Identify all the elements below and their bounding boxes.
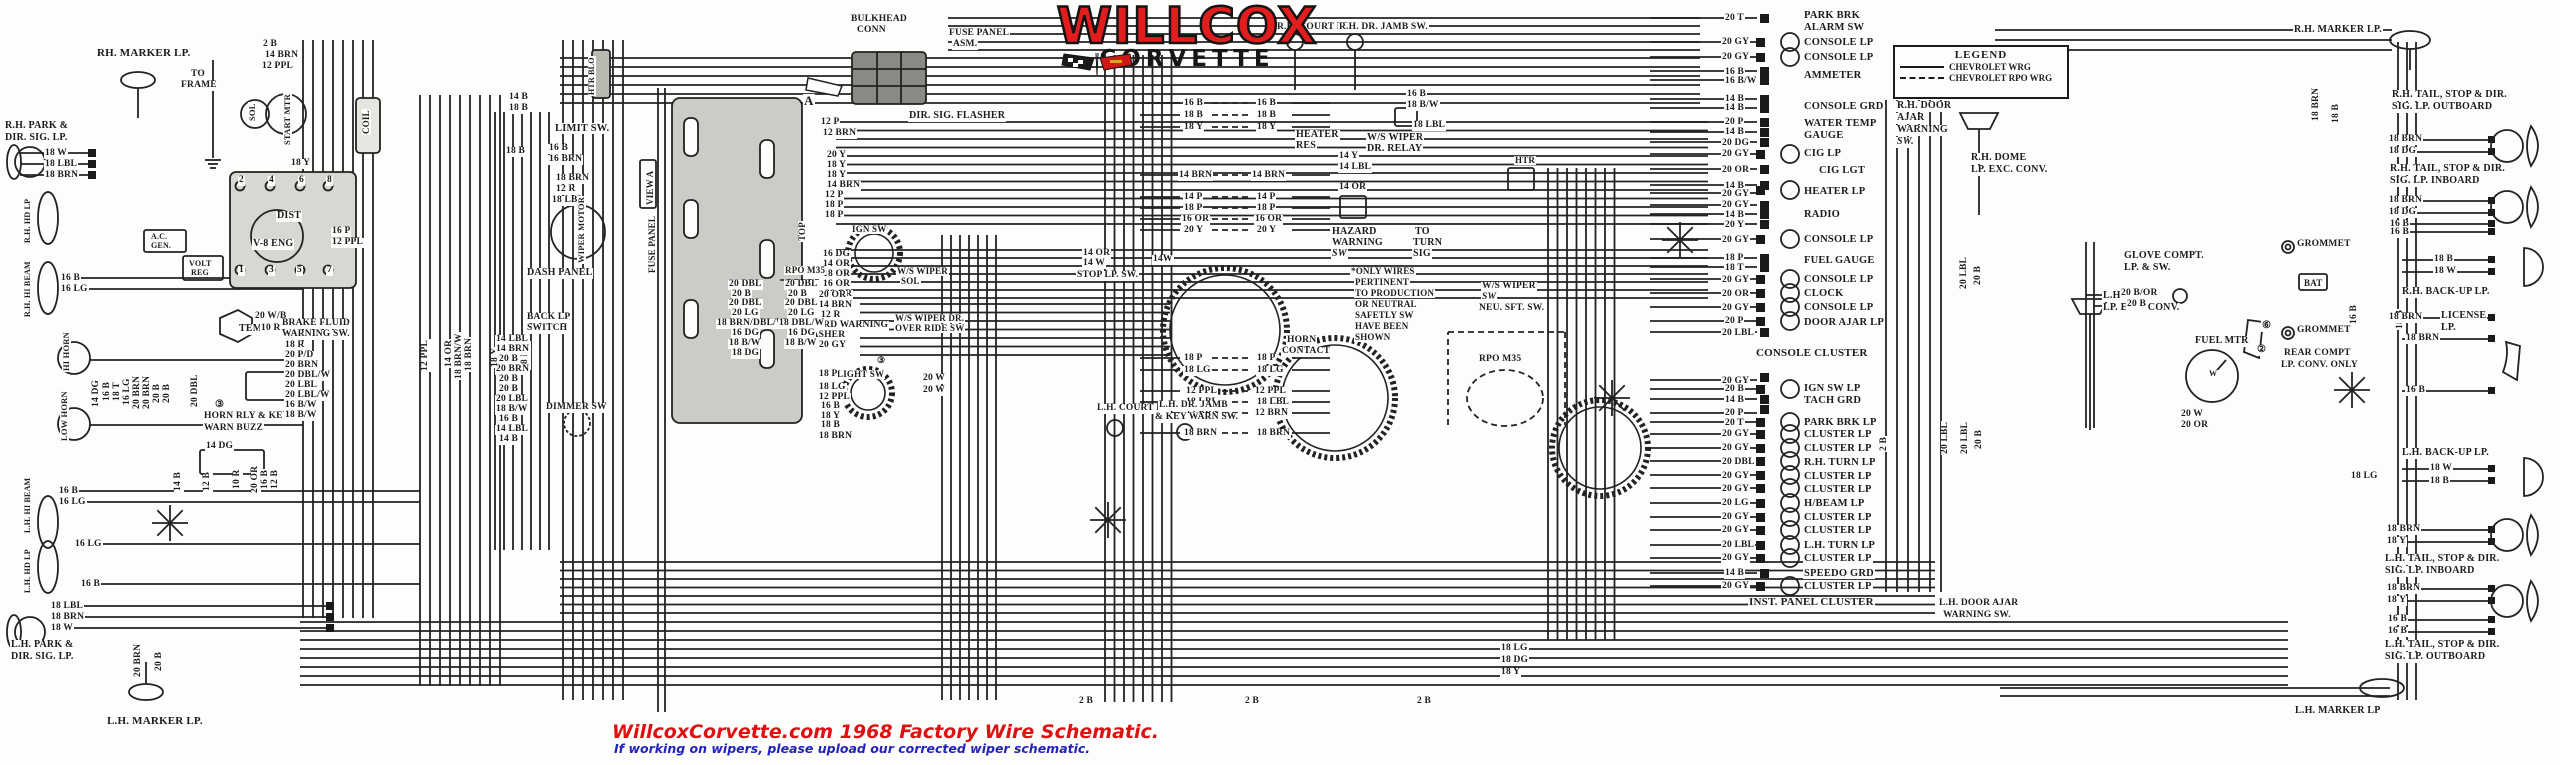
lh-park-dir-sig-lp-label: L.H. PARK & xyxy=(10,640,75,651)
wire-label: TOP xyxy=(798,221,807,242)
wire-label: CLUSTER LP xyxy=(1803,429,1873,440)
wire-label: SIG. LP. INBOARD xyxy=(2389,176,2481,187)
wire-label: TURN xyxy=(1412,238,1443,249)
wire-label: 18 W xyxy=(2429,464,2453,474)
neu-sft-sw-label: NEU. SFT. SW. xyxy=(1478,304,1545,314)
wire-label: 18 Y xyxy=(2386,596,2407,606)
wire-label: 18 BRN xyxy=(1256,429,1291,439)
wire-label: 18 BRN xyxy=(2386,525,2421,535)
wire-label: 16 B xyxy=(60,274,81,284)
wire-label: 20 LBL xyxy=(1941,421,1951,455)
wire-label: 18 BRN xyxy=(2388,196,2423,206)
wire-label: SHOWN xyxy=(1354,333,1392,342)
wire-label: REG xyxy=(190,269,210,277)
wire-label: 10 R xyxy=(260,324,282,334)
wire-label: 20 B xyxy=(163,383,173,404)
wire-label: 14 DG xyxy=(205,442,234,452)
wire-label: DOOR AJAR LP xyxy=(1803,317,1885,328)
wire-label: CLUSTER LP xyxy=(1803,525,1873,536)
wire-label: SAFETLY SW xyxy=(1354,311,1415,320)
wire-label: TO xyxy=(190,70,206,80)
legend-item-chevrolet-rpo-wrg: CHEVROLET RPO WRG xyxy=(1900,73,2067,83)
license-lp-label: LICENSE xyxy=(2440,311,2487,322)
wire-label: 2 B xyxy=(1078,697,1094,707)
wire-label: CLUSTER LP xyxy=(1803,512,1873,523)
wire-label: 18 P xyxy=(1183,204,1203,214)
wire-label: 18 LG xyxy=(2350,472,2379,482)
fuel-gauge-label: FUEL GAUGE xyxy=(1803,255,1876,266)
wire-label: 16 P xyxy=(331,227,351,237)
wire-label: 18 LG xyxy=(1183,366,1212,376)
water-temp-gauge-label: WATER TEMP xyxy=(1803,118,1878,129)
wire-label: GEN. xyxy=(150,242,172,250)
wire-label: CLUSTER LP xyxy=(1803,471,1873,482)
wire-label: 18 P xyxy=(1256,354,1276,364)
wire-label: 12 BRN xyxy=(822,129,857,139)
wire-label: 20 DBL xyxy=(1721,458,1756,468)
dir-sig-flasher-label: DIR. SIG. FLASHER xyxy=(908,111,1006,122)
wire-label: SOL xyxy=(900,277,921,286)
wire-label: 20 Y xyxy=(1183,226,1204,236)
wire-label: HAVE BEEN xyxy=(1354,322,1409,331)
wire-label: LP. xyxy=(2440,323,2457,334)
wire-label: H/BEAM LP xyxy=(1803,498,1865,509)
wire-label: DR. RELAY xyxy=(1366,144,1423,155)
wire-label: 20 GY xyxy=(1721,554,1750,564)
wire-label: 18 B xyxy=(820,421,841,431)
wire-label: 20 GY xyxy=(1721,472,1750,482)
wire-label: SIG xyxy=(1412,249,1432,260)
fuse-panel-asm-label: FUSE PANEL xyxy=(948,29,1010,39)
wire-label: 18 BRN xyxy=(555,174,590,184)
wire-label: 20 GY xyxy=(1721,444,1750,454)
heater-res-label: HEATER xyxy=(1295,130,1340,141)
wire-label: WARN BUZZ xyxy=(203,424,264,434)
wire-label: 4 xyxy=(268,176,275,186)
wire-label: 18 B/W xyxy=(284,411,318,421)
wire-label: 5 xyxy=(296,266,303,276)
legend-item-chevrolet-wrg: CHEVROLET WRG xyxy=(1900,62,2067,72)
wire-label: CONN xyxy=(856,26,887,36)
wire-label: 20 Y xyxy=(1256,226,1277,236)
wire-label: 14 B xyxy=(1724,569,1745,579)
wire-label: 16 LG xyxy=(74,540,103,550)
wire-label: 20 OR xyxy=(2180,421,2209,431)
wire-label: WARNING SW. xyxy=(1942,611,2012,621)
console-cluster-section-label: CONSOLE CLUSTER xyxy=(1755,348,1869,360)
dist-label: DIST xyxy=(276,211,302,222)
wire-label: 20 OR xyxy=(1721,166,1750,176)
wire-label: SW xyxy=(1481,293,1497,303)
wire-label: CONTACT xyxy=(1281,347,1331,357)
wire-label: 18 LBL xyxy=(1412,121,1446,131)
wire-label: IGN SW LP xyxy=(1803,383,1861,394)
wire-label: 20 GY xyxy=(818,341,847,351)
limit-sw-label: LIMIT SW. xyxy=(554,123,610,134)
wire-label: 14 BRN xyxy=(264,51,299,61)
wire-label: 20 GY xyxy=(1721,38,1750,48)
wire-label: CONSOLE LP xyxy=(1803,274,1874,285)
wire-label: L.H. HI BEAM xyxy=(24,477,32,534)
wire-label: RES xyxy=(1295,141,1317,152)
wire-label: 2 xyxy=(238,176,245,186)
schematic-labels-layer: RH. MARKER LP.TOFRAME2 B14 BRN12 PPLSOLS… xyxy=(0,0,2560,765)
wire-label: 18 BRN xyxy=(465,337,475,372)
wire-label: W xyxy=(2208,370,2218,378)
wire-label: 16 B xyxy=(548,144,569,154)
wire-label: 18 B xyxy=(1256,111,1277,121)
wire-label: 18 B xyxy=(2433,255,2454,265)
wire-label: 16 BRN xyxy=(548,155,583,165)
glove-compt-label: GLOVE COMPT. xyxy=(2123,251,2205,262)
wire-label: 16 LG xyxy=(60,285,89,295)
wire-label: 20 LBL xyxy=(1960,256,1970,290)
view-a-label: VIEW A xyxy=(646,170,655,206)
lh-tail-inboard-label: L.H. TAIL, STOP & DIR. xyxy=(2384,554,2500,565)
wire-label: 20 P xyxy=(1724,317,1744,327)
wire-label: CLUSTER LP xyxy=(1803,484,1873,495)
wire-label: FRAME xyxy=(180,81,218,91)
wire-label: 18 LBL xyxy=(50,602,84,612)
radio-label: RADIO xyxy=(1803,209,1841,220)
htr-blo-label: HTR BLO xyxy=(588,56,596,96)
hi-horn-label: HI HORN xyxy=(62,331,71,372)
wire-label: 14 P xyxy=(1183,193,1203,203)
wire-label: 2 B xyxy=(262,40,278,50)
wire-label: 14 B xyxy=(498,435,519,445)
wire-label: & KEY WARN SW. xyxy=(1154,413,1239,423)
wire-label: 16 B xyxy=(2387,627,2408,637)
wire-label: 12 PPL xyxy=(261,62,294,72)
wire-label: 16 B xyxy=(1183,99,1204,109)
legend-box: LEGEND CHEVROLET WRG CHEVROLET RPO WRG xyxy=(1893,45,2069,99)
wire-label: 14 BRN xyxy=(1178,171,1213,181)
wire-label: 14 B xyxy=(1724,128,1745,138)
wire-label: CONSOLE LP xyxy=(1803,234,1874,245)
wire-label: 20 B/OR xyxy=(2120,289,2159,299)
wire-label: 12 PPL xyxy=(1185,387,1218,397)
wire-label: 20 Y xyxy=(1724,221,1745,231)
wire-label: 14 P xyxy=(1256,193,1276,203)
wire-label: 18 LG xyxy=(1500,644,1529,654)
wire-label: LP. EXC. CONV. xyxy=(1970,165,2048,176)
wire-label: SPEEDO GRD xyxy=(1803,568,1875,579)
wire-label: RPO M35 xyxy=(784,266,826,275)
wire-label: 14 B xyxy=(174,471,184,492)
wire-label: 18 BRN xyxy=(2388,313,2423,323)
wire-label: HEATER LP xyxy=(1803,186,1866,197)
legend-title: LEGEND xyxy=(1895,49,2067,61)
wire-label: PERTINENT xyxy=(1354,278,1410,287)
wire-label: 16 B xyxy=(80,580,101,590)
lh-backup-lp-label: L.H. BACK-UP LP. xyxy=(2401,448,2490,459)
wire-label: 18 DG xyxy=(1500,656,1529,666)
wire-label: 20 B xyxy=(2126,300,2147,310)
grommet-label: GROMMET xyxy=(2296,326,2352,336)
wire-label: TO PRODUCTION xyxy=(1354,289,1435,298)
wire-label: R.H. HD LP xyxy=(24,198,32,244)
ws-wiper-dr-relay-label: W/S WIPER xyxy=(1366,133,1424,144)
wire-label: 14W xyxy=(1152,255,1174,265)
wire-label: 12 P xyxy=(820,118,840,128)
wire-label: 18 BRN xyxy=(818,432,853,442)
park-brk-alarm-sw-label: PARK BRK xyxy=(1803,10,1861,21)
wire-label: 14 DG xyxy=(92,379,102,408)
solid-line-sample xyxy=(1900,66,1944,68)
wire-label: R.H. TURN LP xyxy=(1803,457,1877,468)
wire-label: 14 B xyxy=(508,93,529,103)
wire-label: 18 W xyxy=(44,149,68,159)
dash-panel-label: DASH PANEL xyxy=(526,268,593,279)
wire-label: 18 LBL xyxy=(1256,398,1290,408)
rh-dome-lp-label: R.H. DOME xyxy=(1970,153,2027,164)
wire-label: 18 DG xyxy=(731,349,760,359)
wire-label: 18 P xyxy=(1256,204,1276,214)
wire-label: SIG. LP. OUTBOARD xyxy=(2384,652,2486,663)
wire-label: CLUSTER LP xyxy=(1803,581,1873,592)
wire-label: 20 W xyxy=(922,374,946,384)
wire-label: SIG. LP. OUTBOARD xyxy=(2391,102,2493,113)
wire-label: LP. & SW. xyxy=(2123,263,2172,274)
wire-label: 20 BRN xyxy=(134,643,144,678)
wire-label: 20 T xyxy=(1724,419,1745,429)
wire-label: 20 GY xyxy=(1721,276,1750,286)
wire-label: 14 B xyxy=(1724,396,1745,406)
wire-label: 16 B xyxy=(58,487,79,497)
low-horn-label: LOW HORN xyxy=(60,390,69,442)
wire-label: 16 B xyxy=(2405,386,2426,396)
wire-label: 20 B xyxy=(1724,385,1745,395)
wire-label: 16 OR xyxy=(1181,215,1210,225)
inst-panel-cluster-section-label: INST. PANEL CLUSTER xyxy=(1748,597,1875,609)
wire-label: 18 B xyxy=(1183,111,1204,121)
wire-label: 14 OR xyxy=(1338,183,1367,193)
wire-label: 18 BRN xyxy=(2312,87,2322,122)
htr-label: HTR xyxy=(1514,156,1536,165)
wire-label: 18 B xyxy=(508,104,529,114)
wire-label: 14 Y xyxy=(1338,152,1359,162)
logo-title: WILLCOX xyxy=(1022,2,1352,50)
wire-label: 18 Y xyxy=(1256,123,1277,133)
rear-compt-lp-label: REAR COMPT xyxy=(2283,349,2352,359)
wire-label: LP. CONV. ONLY xyxy=(2280,361,2359,371)
wire-label: RPO M35 xyxy=(1478,355,1522,365)
wire-label: 18 BRN xyxy=(2405,334,2440,344)
wire-label: 20 GY xyxy=(1721,150,1750,160)
wire-label: CONSOLE GRD xyxy=(1803,101,1885,112)
wire-label: 16 OR xyxy=(1254,215,1283,225)
wire-label: 18 P xyxy=(1183,354,1203,364)
wire-label: 18 Y xyxy=(290,159,311,169)
lh-marker-lp-right-label: L.H. MARKER LP xyxy=(2294,706,2382,717)
wire-label: 16 B xyxy=(2387,615,2408,625)
wire-label: 20 GY xyxy=(1721,430,1750,440)
coil-label: COIL xyxy=(362,109,371,135)
wire-label: 18 BRN xyxy=(44,171,79,181)
wire-label: CONSOLE LP xyxy=(1803,37,1874,48)
wire-label: 18 Y xyxy=(2386,537,2407,547)
ammeter-label: AMMETER xyxy=(1803,70,1862,81)
wire-label: L.H. HD LP xyxy=(24,548,32,594)
wire-label: 14 BRN xyxy=(1251,171,1286,181)
wire-label: 6 xyxy=(298,176,305,186)
wire-label: 20 GY xyxy=(1721,526,1750,536)
horn-rly-label: HORN RLY & KEY xyxy=(203,412,291,422)
wire-label: 14 B xyxy=(1724,104,1745,114)
wire-label: 18 BRN xyxy=(50,613,85,623)
wire-label: 2 B xyxy=(1880,436,1890,452)
wire-label: 14 W xyxy=(1082,259,1106,269)
rh-marker-lp-right-label: R.H. MARKER LP. xyxy=(2293,25,2383,36)
rh-tail-outboard-label: R.H. TAIL, STOP & DIR. xyxy=(2391,90,2508,101)
wire-label: 18 B xyxy=(2429,477,2450,487)
footer-note: If working on wipers, please upload our … xyxy=(614,742,1159,756)
wire-label: ⑥ xyxy=(2261,321,2272,332)
footer-site-title: WillcoxCorvette.com 1968 Factory Wire Sc… xyxy=(612,722,1159,742)
rh-backup-lp-label: R.H. BACK-UP LP. xyxy=(2401,287,2491,298)
grommet-label: GROMMET xyxy=(2296,240,2352,250)
crossed-flags-icon xyxy=(1060,52,1134,76)
wire-label: CONSOLE LP xyxy=(1803,52,1874,63)
wire-label: 20 LBL xyxy=(1721,541,1755,551)
wire-label: ③ xyxy=(214,400,225,411)
wire-label: ALARM SW xyxy=(1803,22,1865,33)
wire-label: WARNING xyxy=(1896,125,1949,136)
wire-label: 16 B xyxy=(2350,304,2360,325)
rh-tail-inboard-label: R.H. TAIL, STOP & DIR. xyxy=(2389,164,2506,175)
v8-eng-label: V-8 ENG xyxy=(252,239,294,250)
start-mtr-label: START MTR xyxy=(283,93,292,146)
light-sw-label: LIGHT SW xyxy=(836,370,885,379)
wire-label: 20 GY xyxy=(1721,582,1750,592)
wire-label: 20 LG xyxy=(1721,499,1750,509)
wire-label: SIG. LP. INBOARD xyxy=(2384,566,2476,577)
wire-label: 16 B xyxy=(1406,90,1427,100)
wire-label: 12 B xyxy=(203,471,213,492)
wire-label: 18 DG xyxy=(2388,147,2417,157)
wire-label: DIR. SIG. LP. xyxy=(4,133,69,144)
wire-label: 18 W xyxy=(2433,267,2457,277)
wire-label: 18 DG xyxy=(2388,208,2417,218)
lh-marker-lp-label: L.H. MARKER LP. xyxy=(106,716,204,728)
wire-label: CLUSTER LP xyxy=(1803,443,1873,454)
wire-label: GAUGE xyxy=(1803,130,1845,141)
wire-label: 16 B xyxy=(2389,228,2410,238)
wire-label: 20 GY xyxy=(1721,485,1750,495)
wire-label: 12 R xyxy=(555,185,577,195)
wire-label: 18 P xyxy=(824,211,844,221)
wiper-motor-label: WIPER MOTOR xyxy=(577,196,586,264)
lh-dr-jamb-label: L.H. DR. JAMB xyxy=(1158,401,1229,411)
ign-sw-label: IGN SW xyxy=(851,225,887,234)
footer: WillcoxCorvette.com 1968 Factory Wire Sc… xyxy=(612,722,1159,756)
wire-label: 1 xyxy=(238,266,245,276)
note-text: *ONLY WIRES xyxy=(1350,267,1416,276)
wire-label: 18 BRN xyxy=(2386,584,2421,594)
wire-label: ASM. xyxy=(952,40,978,50)
wire-label: 18 BRN xyxy=(1183,429,1218,439)
wire-label: 16 B/W xyxy=(1724,77,1758,87)
wire-label: 20 DG xyxy=(1721,139,1750,149)
lh-door-ajar-warning-sw-label: L.H. DOOR AJAR xyxy=(1938,599,2019,609)
wire-label: TO xyxy=(1414,227,1431,238)
wire-label: ③ xyxy=(876,356,886,365)
wire-label: 2 B xyxy=(1416,697,1432,707)
wire-label: 12 B xyxy=(271,469,281,490)
wire-label: 20 GY xyxy=(1721,304,1750,314)
wire-label: 20 W xyxy=(2180,410,2204,420)
wire-label: 18 W xyxy=(50,624,74,634)
wire-label: 20 LBL xyxy=(1961,421,1971,455)
wire-label: 18 B/W xyxy=(784,339,818,349)
wire-label: 20 GY xyxy=(1721,513,1750,523)
wire-label: 18 B xyxy=(2332,103,2342,124)
wire-label: TACH GRD xyxy=(1803,395,1862,406)
wire-label: 3 xyxy=(268,266,275,276)
wire-label: 20 W xyxy=(922,386,946,396)
wire-label: 12 PPL xyxy=(331,238,364,248)
wire-label: 18 Y xyxy=(1183,123,1204,133)
wire-label: WARNING SW. xyxy=(281,330,351,340)
ws-wiper-sw-label: W/S WIPER xyxy=(1481,282,1537,292)
fuse-panel-label: FUSE PANEL xyxy=(648,215,657,274)
wire-label: OR NEUTRAL xyxy=(1354,300,1418,309)
wire-label: 20 B xyxy=(1975,429,1985,450)
wire-label: 20 OR xyxy=(1721,290,1750,300)
solenoid-label: SOL xyxy=(248,102,257,122)
wire-label: 20 DBL xyxy=(191,373,201,408)
wire-label: 18 B xyxy=(505,147,526,157)
rh-park-dir-sig-lp-label: R.H. PARK & xyxy=(4,121,69,132)
wire-label: 12 PPL xyxy=(421,339,431,372)
wire-label: 16 B xyxy=(1256,99,1277,109)
wire-label: OVER RIDE SW xyxy=(894,324,965,333)
wire-label: WARNING xyxy=(1331,238,1384,249)
willcox-corvette-logo: WILLCOX CORVETTE xyxy=(1022,2,1352,70)
dashed-line-sample xyxy=(1900,77,1944,79)
stop-lp-sw-label: STOP LP. SW. xyxy=(1076,271,1139,281)
wire-label: 2 B xyxy=(1244,697,1260,707)
wire-label: SWITCH xyxy=(526,324,568,334)
back-lp-switch-label: BACK LP xyxy=(526,313,571,323)
wire-label: CONSOLE LP xyxy=(1803,302,1874,313)
wire-label: DIR. SIG. LP. xyxy=(10,652,75,663)
wire-label: 18 LG xyxy=(1256,366,1285,376)
wire-label: R.H. HI BEAM xyxy=(24,260,32,318)
wire-label: L.H. TURN LP xyxy=(1803,540,1876,551)
lh-tail-outboard-label: L.H. TAIL, STOP & DIR. xyxy=(2384,640,2500,651)
wire-label: 20 B xyxy=(1974,265,1984,286)
view-a-marker: A xyxy=(803,94,815,108)
wire-label: 20 T xyxy=(1724,14,1745,24)
clock-label: CLOCK xyxy=(1803,288,1845,299)
wire-label: 12 BRN xyxy=(1254,409,1289,419)
rh-door-ajar-warning-sw-label: R.H. DOOR xyxy=(1896,101,1952,112)
bat-label: BAT xyxy=(2303,279,2323,288)
wire-label: 20 LBL xyxy=(1721,329,1755,339)
wire-label: 20 GY xyxy=(1721,236,1750,246)
wire-label: 20 B xyxy=(155,651,165,672)
hazard-warning-sw-label: HAZARD xyxy=(1331,227,1378,238)
wire-label: SW xyxy=(1331,249,1348,260)
wire-label: 7 xyxy=(326,266,333,276)
brake-fluid-warning-sw-label: BRAKE FLUID xyxy=(281,319,351,329)
wire-label: CIG LP xyxy=(1803,148,1842,159)
wire-label: 20 GY xyxy=(1721,190,1750,200)
wire-label: AJAR xyxy=(1896,113,1925,124)
wire-label: 18 BRN xyxy=(2388,135,2423,145)
wire-label: 18 T xyxy=(1724,264,1745,274)
